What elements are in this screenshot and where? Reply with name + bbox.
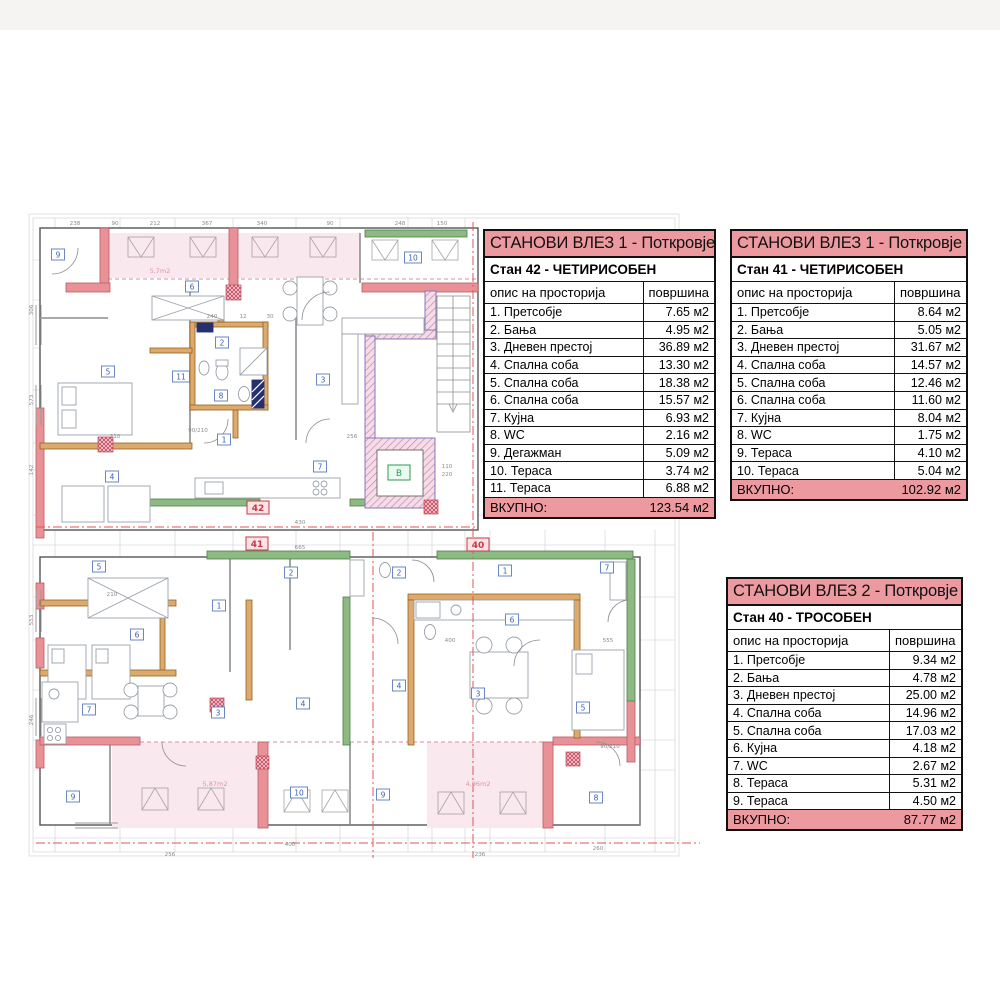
- table-row: 8. WC1.75 м2: [732, 427, 966, 445]
- table-row: 1. Претсобје7.65 м2: [485, 304, 714, 322]
- room-area-cell: 6.88 м2: [643, 479, 714, 497]
- table-row: 4. Спална соба13.30 м2: [485, 356, 714, 374]
- table-row: 10. Тераса3.74 м2: [485, 462, 714, 480]
- table-row: 9. Дегажман5.09 м2: [485, 444, 714, 462]
- room-name-cell: 7. WC: [728, 757, 889, 775]
- room-area-cell: 8.64 м2: [894, 304, 966, 322]
- dimension-number: 90/210: [188, 428, 208, 434]
- table-row: 9. Тераса4.50 м2: [728, 792, 961, 810]
- dimension-number: 665: [295, 545, 306, 551]
- room-label: 9: [381, 791, 386, 800]
- room-name-cell: 9. Тераса: [732, 444, 894, 462]
- table-row: 5. Спална соба18.38 м2: [485, 374, 714, 392]
- room-name-cell: 6. Спална соба: [485, 391, 643, 409]
- dimension-number: 573: [29, 394, 35, 405]
- terrace-lower-left: [112, 742, 258, 828]
- dimension-number: 248: [395, 221, 406, 227]
- room-area-cell: 7.65 м2: [643, 304, 714, 322]
- table-row: 2. Бања4.78 м2: [728, 669, 961, 687]
- room-name-cell: 5. Спална соба: [728, 722, 889, 740]
- room-label: 3: [476, 690, 481, 699]
- room-label: 10: [408, 254, 418, 263]
- table-row: 5. Спална соба12.46 м2: [732, 374, 966, 392]
- room-area-cell: 5.31 м2: [889, 775, 961, 793]
- room-label: 2: [220, 339, 225, 348]
- table-total-row: ВКУПНО: 123.54 м2: [485, 498, 714, 517]
- table-total-row: ВКУПНО: 87.77 м2: [728, 810, 961, 829]
- room-label: 2: [289, 569, 294, 578]
- table-row: 7. Кујна8.04 м2: [732, 409, 966, 427]
- room-area-cell: 3.74 м2: [643, 462, 714, 480]
- dimension-number: 90: [326, 221, 334, 227]
- elevator-label: B: [388, 465, 410, 480]
- room-label: 6: [510, 616, 515, 625]
- dimension-number: 246: [29, 714, 35, 725]
- apartment-label: 41: [251, 540, 264, 550]
- room-area-cell: 11.60 м2: [894, 391, 966, 409]
- table-row: 6. Спална соба15.57 м2: [485, 391, 714, 409]
- room-name-cell: 1. Претсобје: [485, 304, 643, 322]
- stairs: [437, 296, 470, 432]
- room-name-cell: 5. Спална соба: [485, 374, 643, 392]
- room-area-cell: 4.95 м2: [643, 321, 714, 339]
- room-label: 7: [87, 706, 92, 715]
- room-area-cell: 4.18 м2: [889, 739, 961, 757]
- room-name-cell: 9. Тераса: [728, 792, 889, 810]
- room-name-cell: 3. Дневен престој: [732, 339, 894, 357]
- room-area-cell: 9.34 м2: [889, 652, 961, 670]
- room-name-cell: 6. Кујна: [728, 739, 889, 757]
- total-label: ВКУПНО:: [732, 480, 896, 499]
- room-name-cell: 1. Претсобје: [732, 304, 894, 322]
- room-label: 6: [190, 283, 195, 292]
- dimension-number: 30: [266, 314, 274, 320]
- table-row: 5. Спална соба17.03 м2: [728, 722, 961, 740]
- room-area-cell: 31.67 м2: [894, 339, 966, 357]
- column-header-area: површина: [894, 282, 966, 304]
- room-name-cell: 4. Спална соба: [728, 704, 889, 722]
- room-area-cell: 18.38 м2: [643, 374, 714, 392]
- table-title: СТАНОВИ ВЛЕЗ 2 - Поткровје: [728, 579, 961, 606]
- room-area-cell: 6.93 м2: [643, 409, 714, 427]
- room-label: 4: [110, 473, 115, 482]
- room-area-cell: 15.57 м2: [643, 391, 714, 409]
- room-name-cell: 2. Бања: [732, 321, 894, 339]
- dimension-number: 430: [295, 520, 306, 526]
- dimension-number: 240: [207, 314, 218, 320]
- dimension-number: 236: [475, 852, 486, 858]
- room-name-cell: 7. Кујна: [485, 409, 643, 427]
- table-row: 8. WC2.16 м2: [485, 427, 714, 445]
- dimension-number: 110: [442, 464, 453, 470]
- room-label: 5: [581, 704, 586, 713]
- room-label: 7: [318, 463, 323, 472]
- room-label: 8: [594, 794, 599, 803]
- room-label: 1: [222, 436, 227, 445]
- room-name-cell: 2. Бања: [485, 321, 643, 339]
- room-area-cell: 4.78 м2: [889, 669, 961, 687]
- room-name-cell: 5. Спална соба: [732, 374, 894, 392]
- room-area-cell: 13.30 м2: [643, 356, 714, 374]
- terrace-area-label: 5,87m2: [203, 780, 228, 788]
- table-row: 2. Бања5.05 м2: [732, 321, 966, 339]
- room-area-cell: 17.03 м2: [889, 722, 961, 740]
- table-subtitle: Стан 40 - ТРОСОБЕН: [728, 606, 961, 630]
- svg-text:B: B: [396, 469, 402, 479]
- column-header-area: површина: [889, 630, 961, 652]
- room-area-cell: 2.16 м2: [643, 427, 714, 445]
- terrace-area-label: 5,7m2: [150, 267, 171, 275]
- table-title: СТАНОВИ ВЛЕЗ 1 - Поткровје: [732, 231, 966, 258]
- total-value: 123.54 м2: [644, 498, 714, 517]
- room-name-cell: 1. Претсобје: [728, 652, 889, 670]
- brochure-page: B 5,7m25,87m24,96m2 23890212367340902481…: [0, 0, 1000, 1000]
- total-value: 87.77 м2: [899, 810, 961, 829]
- room-area-cell: 4.10 м2: [894, 444, 966, 462]
- room-name-cell: 6. Спална соба: [732, 391, 894, 409]
- table-row: 6. Кујна4.18 м2: [728, 739, 961, 757]
- dimension-number: 142: [29, 465, 35, 476]
- dimension-number: 210: [107, 592, 118, 598]
- table-total-row: ВКУПНО: 102.92 м2: [732, 480, 966, 499]
- room-label: 9: [56, 251, 61, 260]
- room-name-cell: 2. Бања: [728, 669, 889, 687]
- column-header-description: опис на просторија: [728, 630, 889, 652]
- dimension-number: 150: [437, 221, 448, 227]
- dimension-number: 256: [165, 852, 176, 858]
- room-label: 5: [97, 563, 102, 572]
- table-row: 1. Претсобје8.64 м2: [732, 304, 966, 322]
- table-row: 6. Спална соба11.60 м2: [732, 391, 966, 409]
- room-name-cell: 7. Кујна: [732, 409, 894, 427]
- room-label: 9: [71, 793, 76, 802]
- dimension-number: 340: [257, 221, 268, 227]
- room-label: 5: [106, 368, 111, 377]
- table-row: 3. Дневен престој31.67 м2: [732, 339, 966, 357]
- column-header-area: површина: [643, 282, 714, 304]
- total-value: 102.92 м2: [896, 480, 966, 499]
- room-name-cell: 10. Тераса: [732, 462, 894, 480]
- total-label: ВКУПНО:: [728, 810, 899, 829]
- table-row: 3. Дневен престој36.89 м2: [485, 339, 714, 357]
- table-row: 3. Дневен престој25.00 м2: [728, 687, 961, 705]
- apartment-table-41: СТАНОВИ ВЛЕЗ 1 - Поткровје Стан 41 - ЧЕТ…: [730, 229, 968, 501]
- room-label: 3: [321, 376, 326, 385]
- room-area-cell: 36.89 м2: [643, 339, 714, 357]
- table-row: 4. Спална соба14.57 м2: [732, 356, 966, 374]
- room-name-cell: 9. Дегажман: [485, 444, 643, 462]
- table-row: 7. WC2.67 м2: [728, 757, 961, 775]
- dimension-number: 256: [347, 434, 358, 440]
- column-header-description: опис на просторија: [732, 282, 894, 304]
- table-row: 4. Спална соба14.96 м2: [728, 704, 961, 722]
- room-label: 1: [503, 567, 508, 576]
- room-label: 11: [176, 373, 186, 382]
- dimension-number: 90/210: [600, 744, 620, 750]
- dimension-number: 306: [29, 304, 35, 315]
- table-row: 9. Тераса4.10 м2: [732, 444, 966, 462]
- column-header-description: опис на просторија: [485, 282, 643, 304]
- table-row: 10. Тераса5.04 м2: [732, 462, 966, 480]
- room-label: 1: [217, 602, 222, 611]
- room-name-cell: 4. Спална соба: [485, 356, 643, 374]
- room-area-cell: 1.75 м2: [894, 427, 966, 445]
- room-label: 4: [397, 682, 402, 691]
- dimension-number: 90: [111, 221, 119, 227]
- table-row: 2. Бања4.95 м2: [485, 321, 714, 339]
- room-area-cell: 5.09 м2: [643, 444, 714, 462]
- dimension-number: 238: [70, 221, 81, 227]
- room-area-cell: 2.67 м2: [889, 757, 961, 775]
- room-label: 4: [301, 700, 306, 709]
- room-name-cell: 10. Тераса: [485, 462, 643, 480]
- apartment-table-42: СТАНОВИ ВЛЕЗ 1 - Поткровје Стан 42 - ЧЕТ…: [483, 229, 716, 519]
- dimension-number: 400: [445, 638, 456, 644]
- room-label: 7: [605, 564, 610, 573]
- room-area-cell: 25.00 м2: [889, 687, 961, 705]
- apartment-table-40: СТАНОВИ ВЛЕЗ 2 - Поткровје Стан 40 - ТРО…: [726, 577, 963, 831]
- room-label: 10: [294, 789, 304, 798]
- table-row: 1. Претсобје9.34 м2: [728, 652, 961, 670]
- room-area-cell: 5.04 м2: [894, 462, 966, 480]
- apartment-label: 42: [252, 504, 265, 514]
- table-row: 8. Тераса5.31 м2: [728, 775, 961, 793]
- room-name-cell: 4. Спална соба: [732, 356, 894, 374]
- room-area-cell: 14.96 м2: [889, 704, 961, 722]
- terrace-area-label: 4,96m2: [466, 780, 491, 788]
- room-name-cell: 8. WC: [485, 427, 643, 445]
- room-area-cell: 12.46 м2: [894, 374, 966, 392]
- room-name-cell: 3. Дневен престој: [728, 687, 889, 705]
- room-label: 2: [397, 569, 402, 578]
- dimension-number: 210: [110, 434, 121, 440]
- room-name-cell: 8. Тераса: [728, 775, 889, 793]
- table-row: 11. Тераса6.88 м2: [485, 479, 714, 497]
- room-name-cell: 8. WC: [732, 427, 894, 445]
- table-title: СТАНОВИ ВЛЕЗ 1 - Поткровје: [485, 231, 714, 258]
- room-label: 3: [216, 709, 221, 718]
- dimension-number: 220: [442, 472, 453, 478]
- room-area-cell: 4.50 м2: [889, 792, 961, 810]
- table-subtitle: Стан 41 - ЧЕТИРИСОБЕН: [732, 258, 966, 282]
- room-label: 8: [219, 392, 224, 401]
- room-name-cell: 11. Тераса: [485, 479, 643, 497]
- total-label: ВКУПНО:: [485, 498, 644, 517]
- dimension-number: 400: [285, 842, 296, 848]
- table-subtitle: Стан 42 - ЧЕТИРИСОБЕН: [485, 258, 714, 282]
- dimension-number: 553: [29, 614, 35, 625]
- apartment-label: 40: [472, 541, 485, 551]
- room-label: 6: [135, 631, 140, 640]
- room-name-cell: 3. Дневен престој: [485, 339, 643, 357]
- dimension-number: 212: [150, 221, 161, 227]
- dimension-number: 260: [593, 846, 604, 852]
- table-row: 7. Кујна6.93 м2: [485, 409, 714, 427]
- room-area-cell: 8.04 м2: [894, 409, 966, 427]
- dimension-number: 12: [239, 314, 246, 320]
- dimension-number: 367: [202, 221, 213, 227]
- room-area-cell: 14.57 м2: [894, 356, 966, 374]
- dimension-number: 555: [603, 638, 614, 644]
- room-area-cell: 5.05 м2: [894, 321, 966, 339]
